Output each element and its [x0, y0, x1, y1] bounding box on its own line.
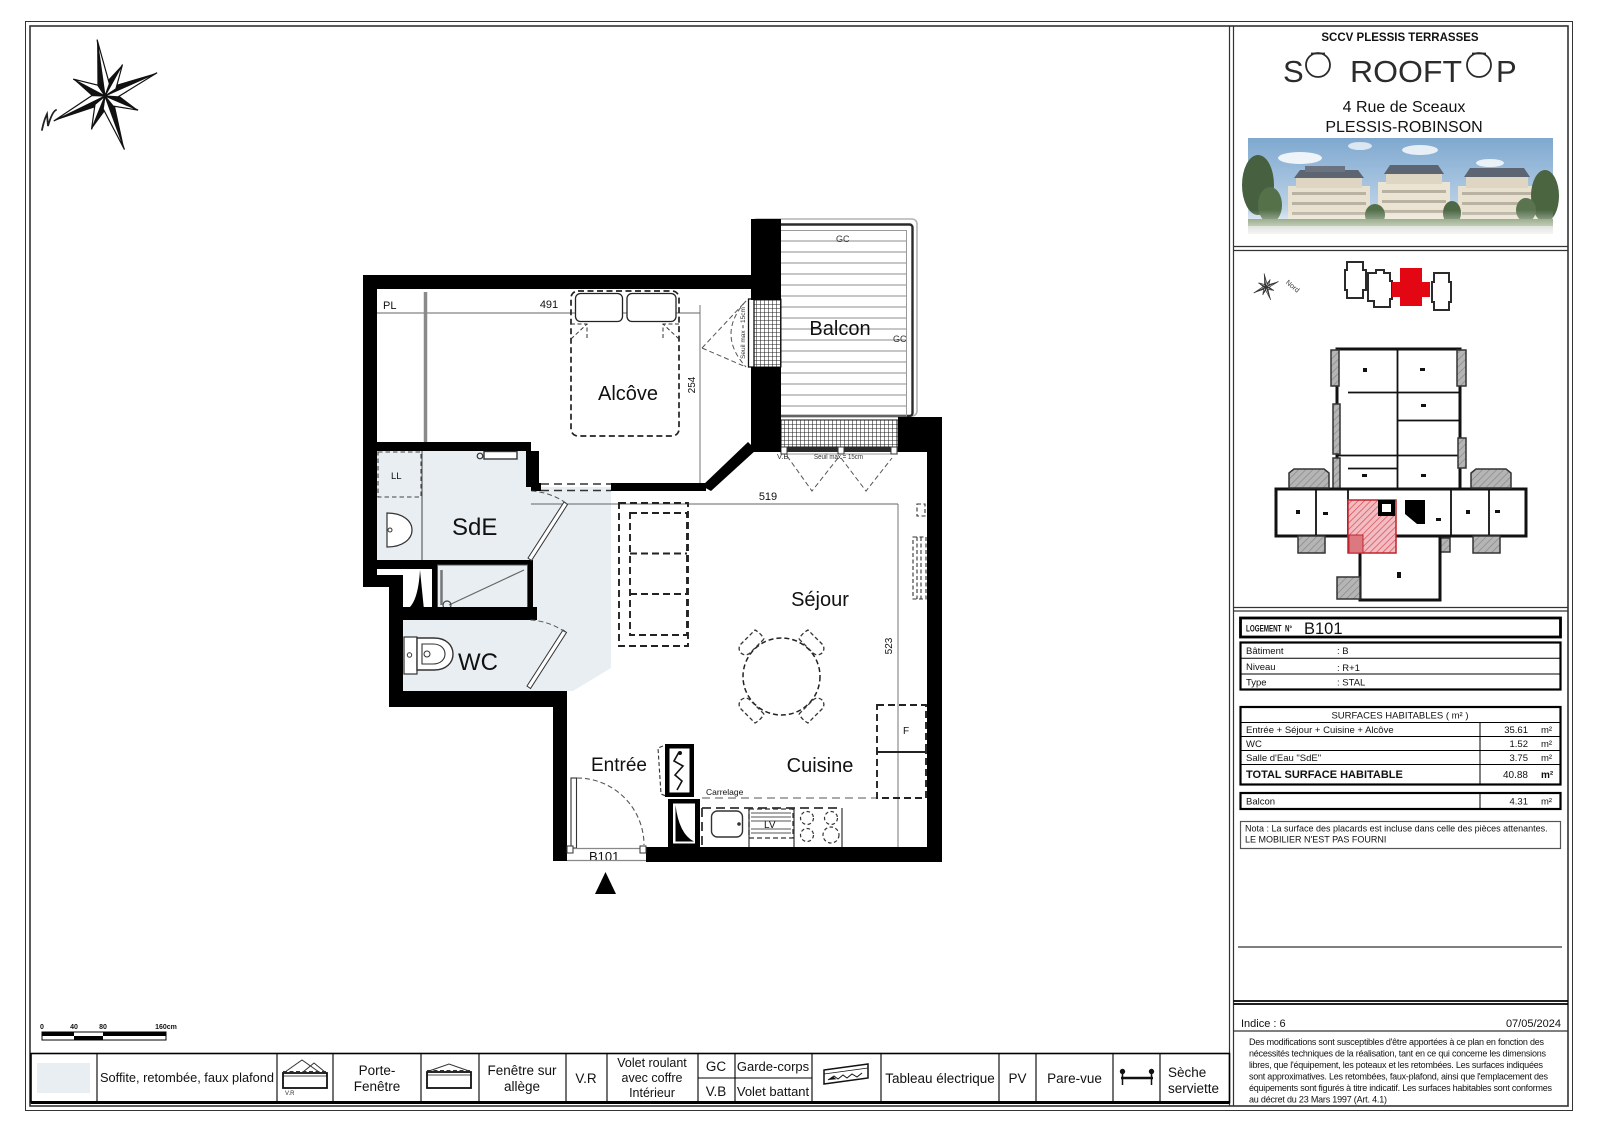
svg-text:Garde-corps: Garde-corps: [737, 1059, 810, 1074]
svg-text:m²: m²: [1541, 797, 1552, 808]
svg-text:4.31: 4.31: [1510, 797, 1529, 808]
svg-text:m²: m²: [1541, 770, 1554, 781]
svg-text:Volet battant: Volet battant: [737, 1084, 810, 1099]
svg-text:Entrée: Entrée: [591, 755, 647, 776]
svg-text:allège: allège: [504, 1079, 540, 1094]
svg-text:LE MOBILIER N'EST PAS FOURNI: LE MOBILIER N'EST PAS FOURNI: [1245, 835, 1386, 845]
svg-text:Des modifications sont suscept: Des modifications sont susceptibles d'êt…: [1249, 1037, 1545, 1047]
svg-text:LOGEMENT N°: LOGEMENT N°: [1246, 624, 1292, 634]
svg-text:Seuil max = 15cm: Seuil max = 15cm: [814, 452, 863, 461]
svg-text:au décret du 23 Mars 1997 (Art: au décret du 23 Mars 1997 (Art. 4.1): [1249, 1095, 1387, 1105]
svg-text:V.B: V.B: [777, 452, 788, 461]
svg-text:S: S: [1283, 54, 1304, 89]
svg-text:SdE: SdE: [452, 514, 497, 541]
svg-text:: B: : B: [1337, 646, 1349, 657]
svg-text:160cm: 160cm: [155, 1024, 177, 1031]
svg-text:PV: PV: [1008, 1071, 1026, 1086]
svg-text:491: 491: [540, 299, 558, 311]
svg-text:nécessités techniques de la ré: nécessités techniques de la réalisation,…: [1249, 1049, 1547, 1059]
svg-text:Intérieur: Intérieur: [629, 1086, 675, 1100]
svg-text:LL: LL: [391, 471, 402, 482]
svg-text:WC: WC: [458, 649, 498, 676]
svg-text:équipements sont figurés à tit: équipements sont figurés à titre indicat…: [1249, 1083, 1553, 1093]
svg-text:Soffite, retombée, faux plafon: Soffite, retombée, faux plafond: [100, 1070, 274, 1085]
svg-text:3.75: 3.75: [1510, 753, 1529, 764]
svg-text:Balcon: Balcon: [809, 318, 870, 340]
svg-text:Type: Type: [1246, 678, 1267, 689]
svg-text:SURFACES HABITABLES ( m² ): SURFACES HABITABLES ( m² ): [1331, 711, 1468, 722]
svg-text:Salle d'Eau "SdE": Salle d'Eau "SdE": [1246, 753, 1321, 764]
svg-text:40.88: 40.88: [1503, 770, 1528, 781]
svg-text:Balcon: Balcon: [1246, 797, 1275, 808]
svg-text:WC: WC: [1246, 739, 1262, 750]
svg-text:V.R: V.R: [575, 1071, 597, 1086]
svg-text:Indice : 6: Indice : 6: [1241, 1018, 1286, 1030]
svg-text:GC: GC: [836, 234, 850, 244]
svg-text:P: P: [1496, 54, 1517, 89]
svg-text:m²: m²: [1541, 725, 1552, 736]
svg-text:PLESSIS-ROBINSON: PLESSIS-ROBINSON: [1325, 119, 1482, 136]
svg-text:Sèche: Sèche: [1168, 1065, 1206, 1080]
svg-text:GC: GC: [893, 334, 907, 344]
svg-text:4 Rue de Sceaux: 4 Rue de Sceaux: [1343, 99, 1466, 116]
svg-text:Niveau: Niveau: [1246, 662, 1276, 673]
svg-text:0: 0: [40, 1024, 44, 1031]
svg-text:V.R: V.R: [285, 1091, 295, 1097]
svg-text:avec coffre: avec coffre: [622, 1071, 683, 1085]
svg-text:Alcôve: Alcôve: [598, 383, 658, 405]
svg-text:SCCV PLESSIS TERRASSES: SCCV PLESSIS TERRASSES: [1321, 32, 1479, 44]
svg-text:Cuisine: Cuisine: [787, 755, 854, 777]
svg-text:F: F: [903, 726, 909, 737]
svg-text:PL: PL: [383, 300, 396, 312]
svg-text:Tableau électrique: Tableau électrique: [885, 1071, 995, 1086]
svg-text:40: 40: [70, 1024, 78, 1031]
svg-text:serviette: serviette: [1168, 1081, 1219, 1096]
svg-text:Fenêtre sur: Fenêtre sur: [487, 1063, 557, 1078]
svg-text:Nord: Nord: [1284, 279, 1300, 294]
svg-text:LV: LV: [764, 820, 776, 831]
svg-text:Pare-vue: Pare-vue: [1047, 1071, 1102, 1086]
svg-text:TOTAL SURFACE HABITABLE: TOTAL SURFACE HABITABLE: [1246, 769, 1403, 781]
svg-text:254: 254: [687, 376, 698, 393]
svg-text:Porte-: Porte-: [359, 1063, 396, 1078]
svg-text:80: 80: [99, 1024, 107, 1031]
svg-text:sont approximatives. Les retom: sont approximatives. Les retombées, faux…: [1249, 1072, 1549, 1082]
svg-text:35.61: 35.61: [1504, 725, 1528, 736]
svg-text:Fenêtre: Fenêtre: [354, 1079, 401, 1094]
svg-text:Carrelage: Carrelage: [706, 787, 744, 797]
svg-text:V.B: V.B: [706, 1084, 727, 1099]
svg-text:GC: GC: [706, 1059, 727, 1074]
svg-text:B101: B101: [1304, 620, 1343, 638]
svg-text:: STAL: : STAL: [1337, 678, 1365, 689]
svg-text:m²: m²: [1541, 753, 1552, 764]
svg-text:m²: m²: [1541, 739, 1552, 750]
svg-text:Bâtiment: Bâtiment: [1246, 646, 1284, 657]
svg-text:Nota : La surface des placards: Nota : La surface des placards est inclu…: [1245, 824, 1548, 834]
svg-text:Seuil max = 15cm: Seuil max = 15cm: [740, 307, 747, 359]
svg-text:Séjour: Séjour: [791, 589, 849, 611]
svg-text:1.52: 1.52: [1510, 739, 1529, 750]
svg-text:Volet roulant: Volet roulant: [617, 1056, 687, 1070]
svg-text:Entrée + Séjour + Cuisine + Al: Entrée + Séjour + Cuisine + Alcôve: [1246, 725, 1394, 736]
svg-text:B101: B101: [589, 849, 619, 864]
svg-text:523: 523: [884, 637, 895, 654]
svg-text:libres, que l'équipement, les: libres, que l'équipement, les poteaux et…: [1249, 1060, 1544, 1070]
svg-text:: R+1: : R+1: [1337, 663, 1360, 674]
svg-text:07/05/2024: 07/05/2024: [1506, 1018, 1561, 1030]
svg-text:ROOFT: ROOFT: [1350, 54, 1462, 89]
svg-text:519: 519: [759, 491, 777, 503]
